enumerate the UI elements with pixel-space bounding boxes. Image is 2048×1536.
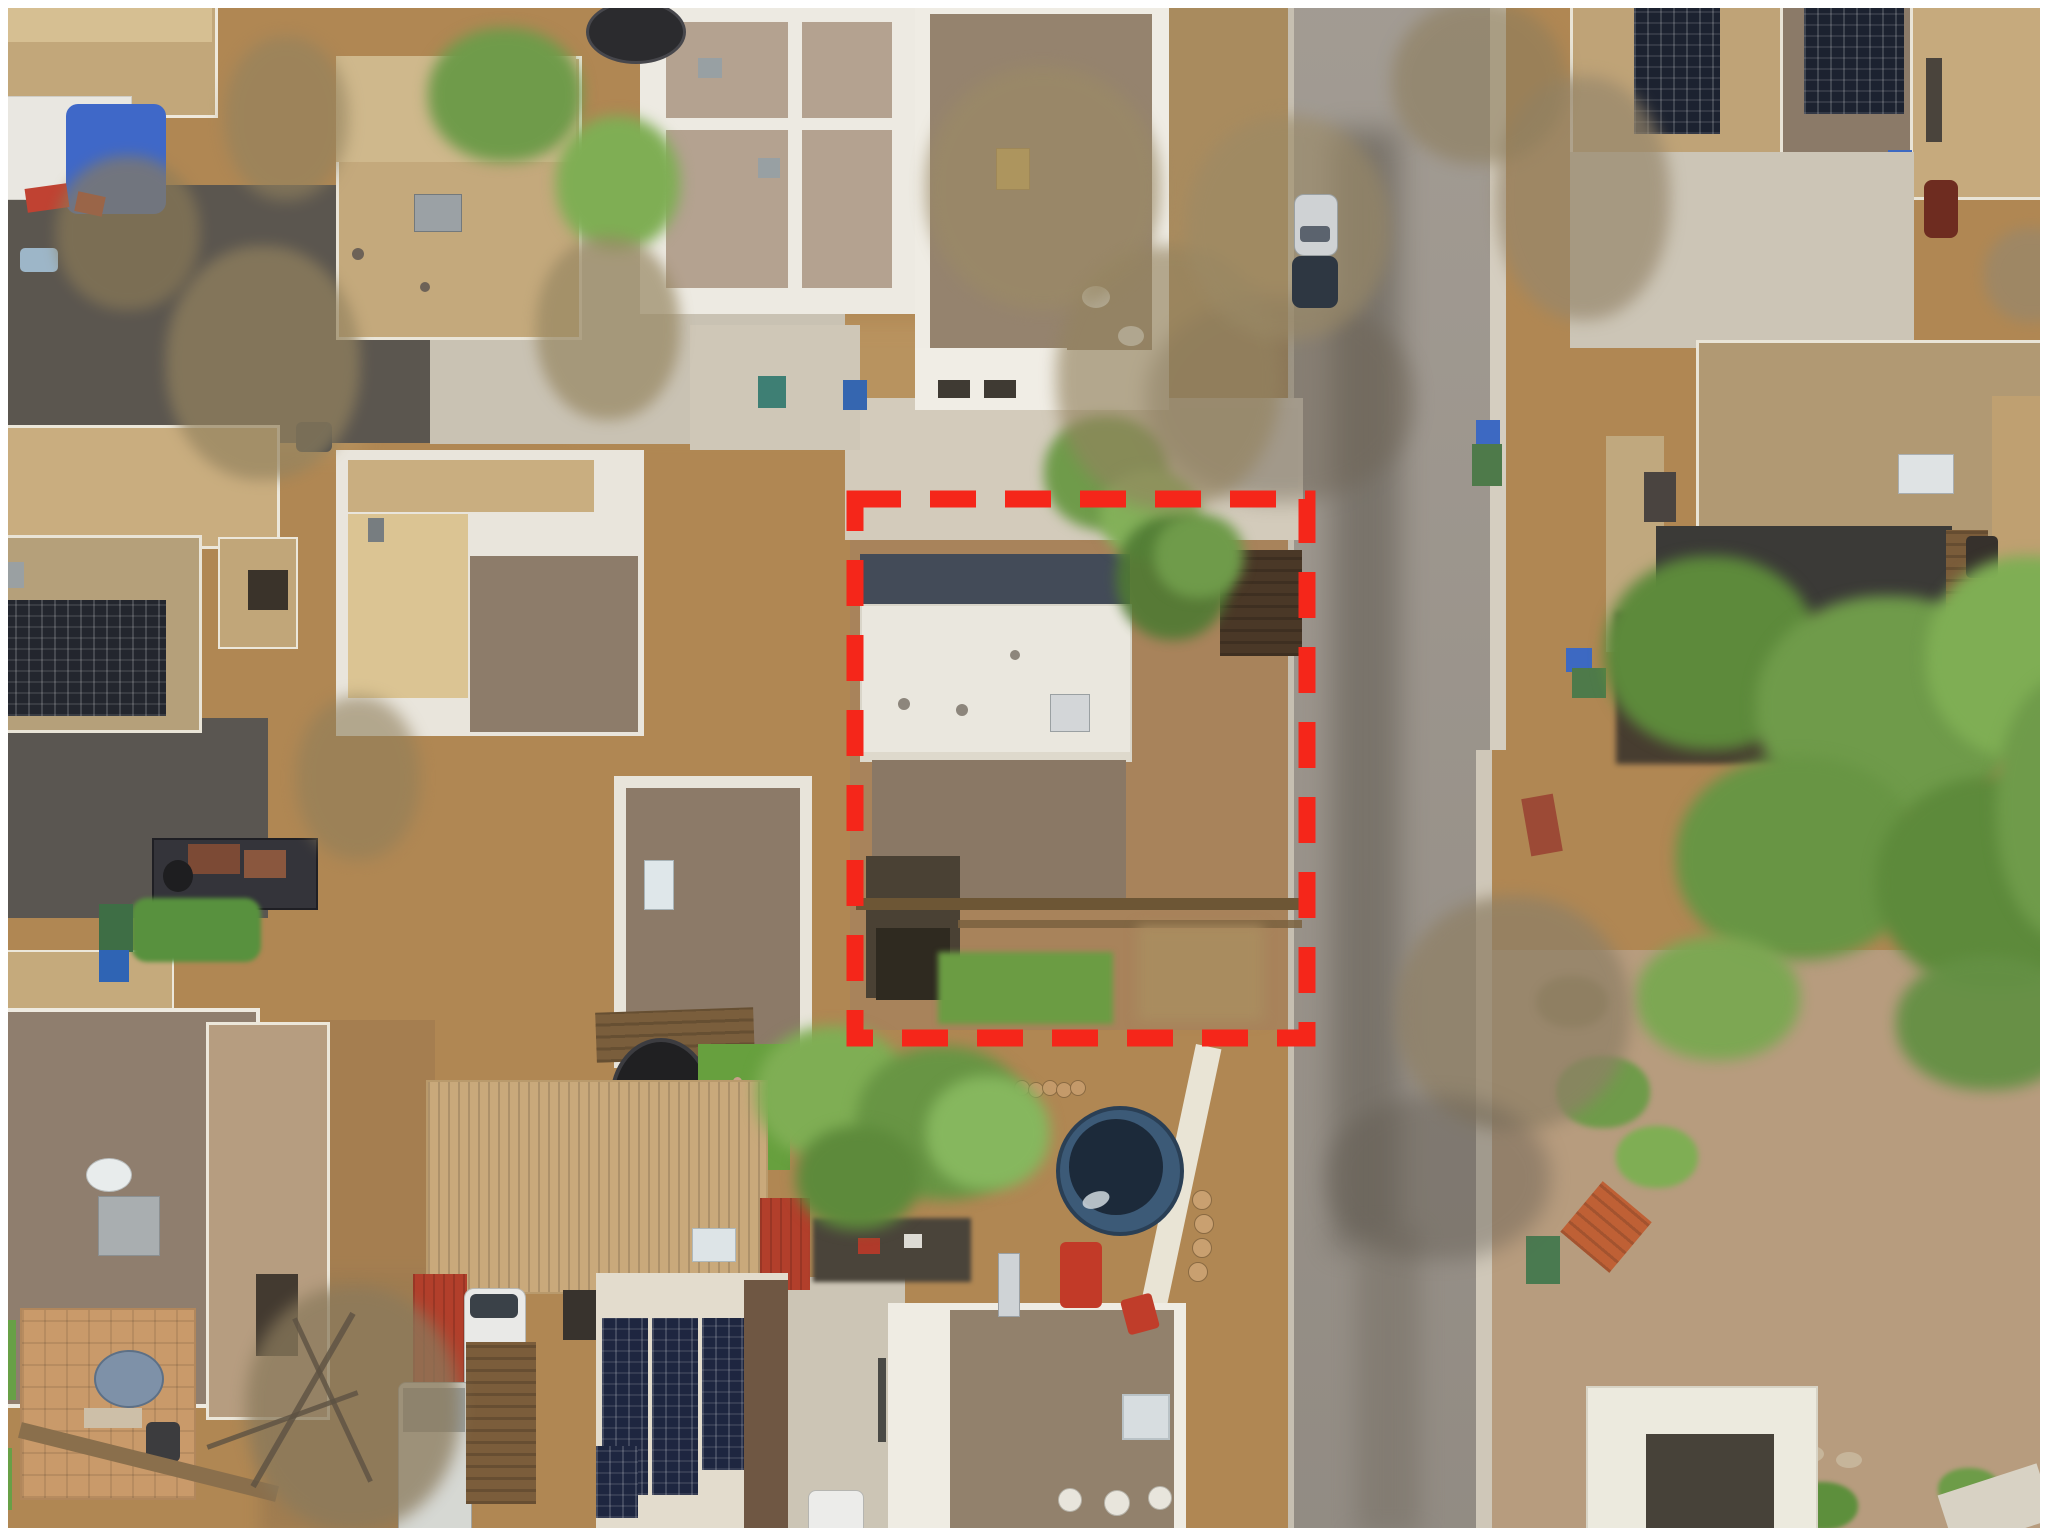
property-roof-box — [1050, 694, 1090, 732]
shrub-xeriscape-2 — [1616, 1126, 1698, 1188]
house-a-vent-1 — [352, 248, 364, 260]
window-dark-left-wing — [248, 570, 288, 610]
house-b-ac-2 — [758, 158, 780, 178]
canopy-center-4 — [796, 1126, 920, 1230]
car-silver-road — [1294, 194, 1338, 256]
drytree-right-top-2 — [1392, 0, 1566, 164]
drytree-road-bottom — [1396, 896, 1630, 1130]
drybrush-topleft-corner — [224, 36, 348, 200]
house-a-vent-2 — [420, 282, 430, 292]
house-b-cross-wall-v — [788, 22, 802, 288]
junk-white-item — [904, 1234, 922, 1248]
patio-umbrella — [94, 1350, 164, 1408]
stone-3 — [1836, 1452, 1862, 1468]
solar-column-2 — [652, 1318, 698, 1495]
bin-green-roadside — [1472, 444, 1502, 486]
gate-bottom — [878, 1358, 886, 1442]
house-c-roof-strip — [348, 460, 594, 512]
drybrush-left-1 — [166, 246, 360, 480]
house-r3-ac — [1898, 454, 1954, 494]
drybrush-center-1 — [536, 236, 680, 420]
white-house-skylight — [1122, 1394, 1170, 1440]
road-stain-bottom — [1356, 1230, 1420, 1536]
pot-column-2 — [1194, 1214, 1214, 1234]
car-lightblue — [20, 248, 58, 272]
junk-rust-a — [188, 844, 240, 874]
house-b-ac-1 — [698, 58, 722, 78]
white-house-vent-2 — [1104, 1490, 1130, 1516]
bin-green-mid-right — [1572, 668, 1606, 698]
drybrush-left-2 — [56, 156, 200, 310]
wood-deck-bottom — [466, 1342, 536, 1504]
house-b-lower-wall — [915, 348, 1067, 410]
backyard-dry-shrubs — [1138, 926, 1263, 1021]
ladder — [998, 1253, 1020, 1317]
property-vent-2 — [956, 704, 968, 716]
house-b-cross-wall-h — [666, 118, 892, 130]
bin-blue-apron — [843, 380, 867, 410]
lawn-edge-2 — [0, 1448, 12, 1510]
solar-array-r1b — [1804, 4, 1904, 114]
property-lawn — [938, 952, 1113, 1024]
solar-column-4 — [596, 1446, 638, 1518]
backyard-fence-main — [856, 898, 1304, 910]
solar-array-left — [2, 600, 166, 716]
drytree-top-road-3 — [1186, 116, 1390, 340]
bin-teal-apron — [758, 376, 786, 408]
solar-house-wall — [744, 1280, 788, 1536]
house-b-window-2 — [984, 380, 1016, 398]
bin-blue-roadside — [1476, 420, 1500, 444]
white-car-bottom — [808, 1490, 864, 1536]
dumpster-green — [99, 904, 133, 952]
baretree-bottomleft — [246, 1286, 460, 1530]
junk-bag — [163, 860, 193, 892]
white-house-vent-3 — [1148, 1486, 1172, 1510]
car-dark-road — [1292, 256, 1338, 308]
house-c-roof-brown — [470, 556, 638, 732]
bin-blue-left — [99, 950, 129, 982]
red-couch — [1060, 1242, 1102, 1308]
solar-column-3 — [702, 1318, 744, 1470]
aerial-photo-canvas — [0, 0, 2048, 1536]
pot-column-3 — [1192, 1238, 1212, 1258]
house-r2-windows — [1926, 58, 1942, 142]
car-silver-windshield — [1300, 226, 1330, 242]
bin-green-r5 — [1526, 1236, 1560, 1284]
pot-column-1 — [1192, 1190, 1212, 1210]
house-d-skylight — [644, 860, 674, 910]
property-dark-band — [860, 554, 1130, 608]
drytree-road-bottom-shadow — [1326, 1096, 1550, 1260]
tree-top-center-2 — [556, 116, 680, 250]
slat-roof-skylight — [692, 1228, 736, 1262]
swamp-cooler — [98, 1196, 160, 1256]
canopy-center-3 — [926, 1076, 1050, 1190]
house-r3-window — [1644, 472, 1676, 522]
junk-rust-b — [244, 850, 286, 878]
maroon-car — [1924, 180, 1958, 238]
white-house-vent-1 — [1058, 1488, 1082, 1512]
house-r5-courtyard — [1646, 1434, 1774, 1536]
property-vent-3 — [1010, 650, 1020, 660]
house-a-ac — [414, 194, 462, 232]
van-windshield — [470, 1294, 518, 1318]
patio-bench — [84, 1408, 142, 1428]
house-c-meter — [368, 518, 384, 542]
trampoline-top — [586, 0, 686, 64]
tree-top-center-1 — [428, 28, 582, 162]
property-white-roof — [860, 604, 1132, 762]
lawn-edge-1 — [0, 1320, 16, 1400]
ac-unit-left2 — [2, 562, 24, 588]
house-b-window-1 — [938, 380, 970, 398]
pot-column-4 — [1188, 1262, 1208, 1282]
drybrush-center-2 — [296, 696, 420, 860]
clay-pot-5 — [1070, 1080, 1086, 1096]
house-topleft-upper-band — [0, 0, 212, 42]
tree-right-7 — [1636, 936, 1800, 1060]
junk-red-item — [858, 1238, 880, 1254]
tree-northeast-corner — [1154, 514, 1244, 598]
satellite-dish — [86, 1158, 132, 1192]
hedge-green — [131, 898, 261, 962]
house-c-roof-tan — [348, 514, 468, 698]
property-vent-1 — [898, 698, 910, 710]
